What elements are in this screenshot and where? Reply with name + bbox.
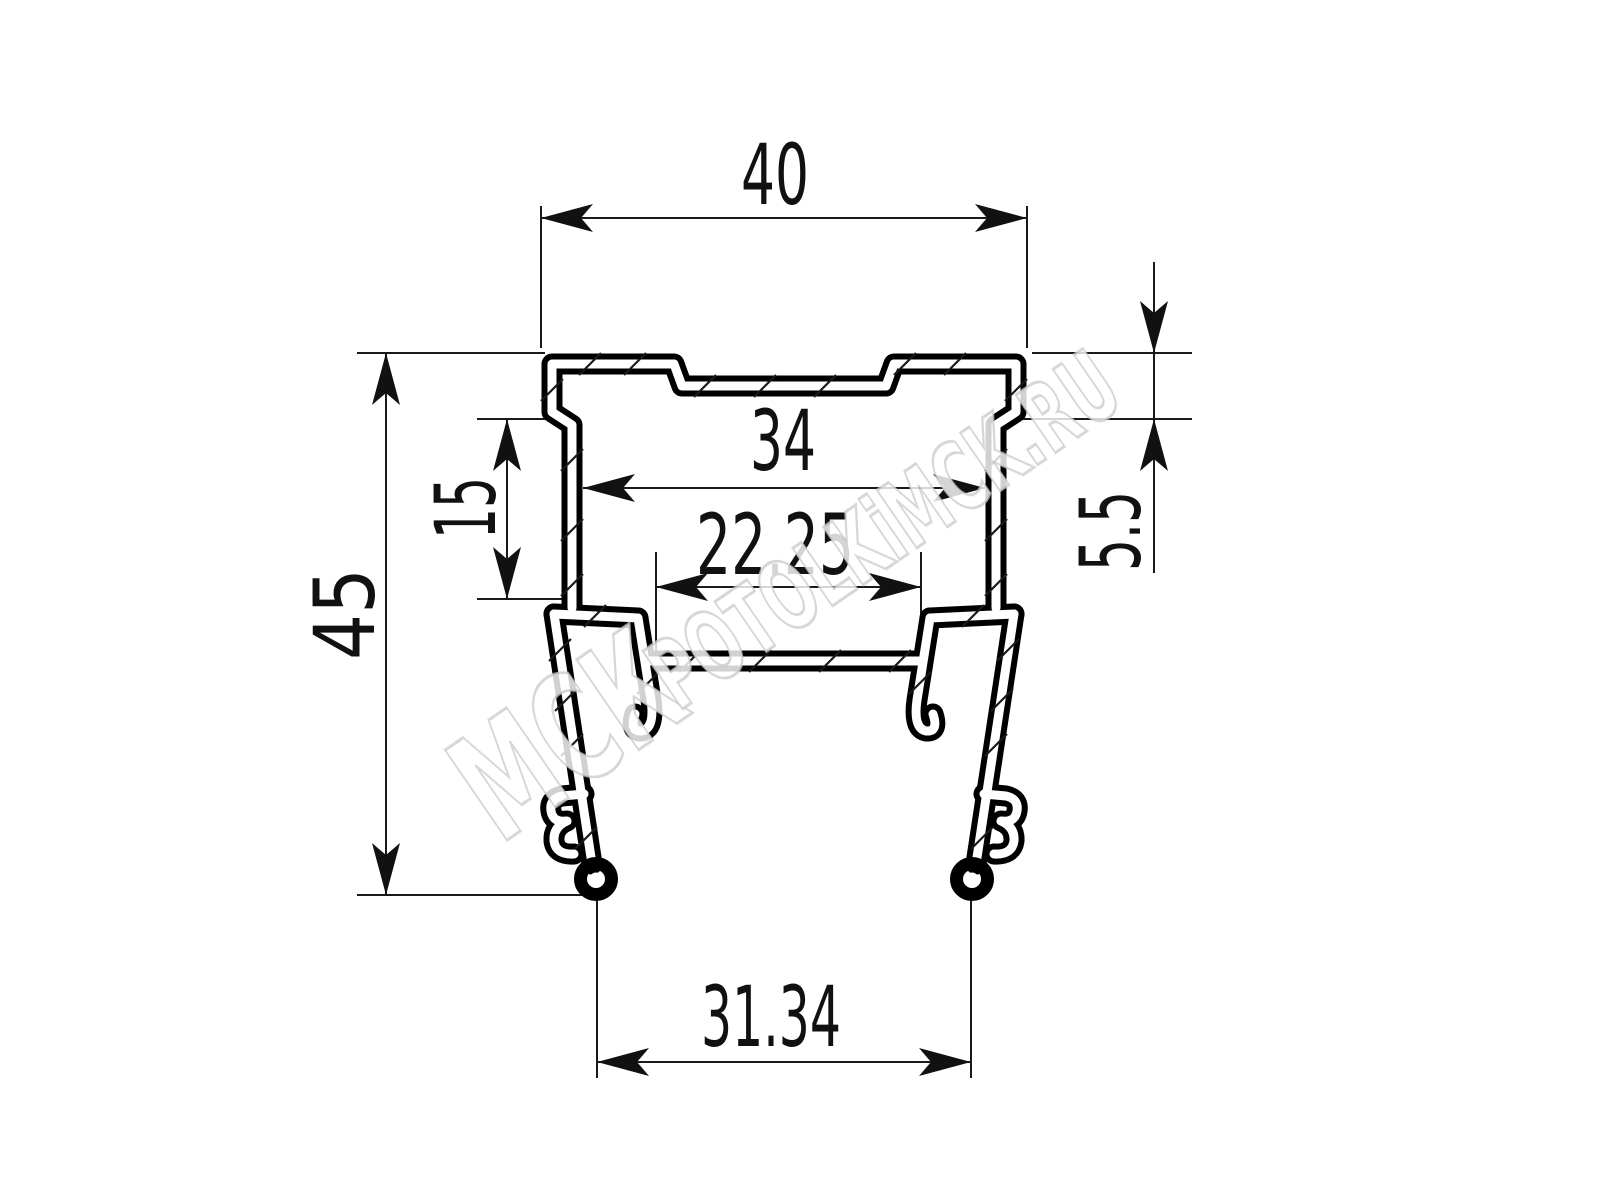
dim-inner-width-label: 34 — [750, 392, 816, 490]
dim-top-width-label: 40 — [741, 126, 809, 224]
dim-overall-height-label: 45 — [296, 568, 394, 660]
profile-drawing-svg: 40 34 22.25 15 45 5.5 31.34 — [0, 0, 1600, 1200]
dim-leg-span-label: 31.34 — [701, 968, 841, 1066]
dim-lip-offset-label: 5.5 — [1062, 491, 1160, 571]
dim-side-wall-height-label: 15 — [417, 477, 515, 539]
drawing-canvas: 40 34 22.25 15 45 5.5 31.34 — [0, 0, 1600, 1200]
